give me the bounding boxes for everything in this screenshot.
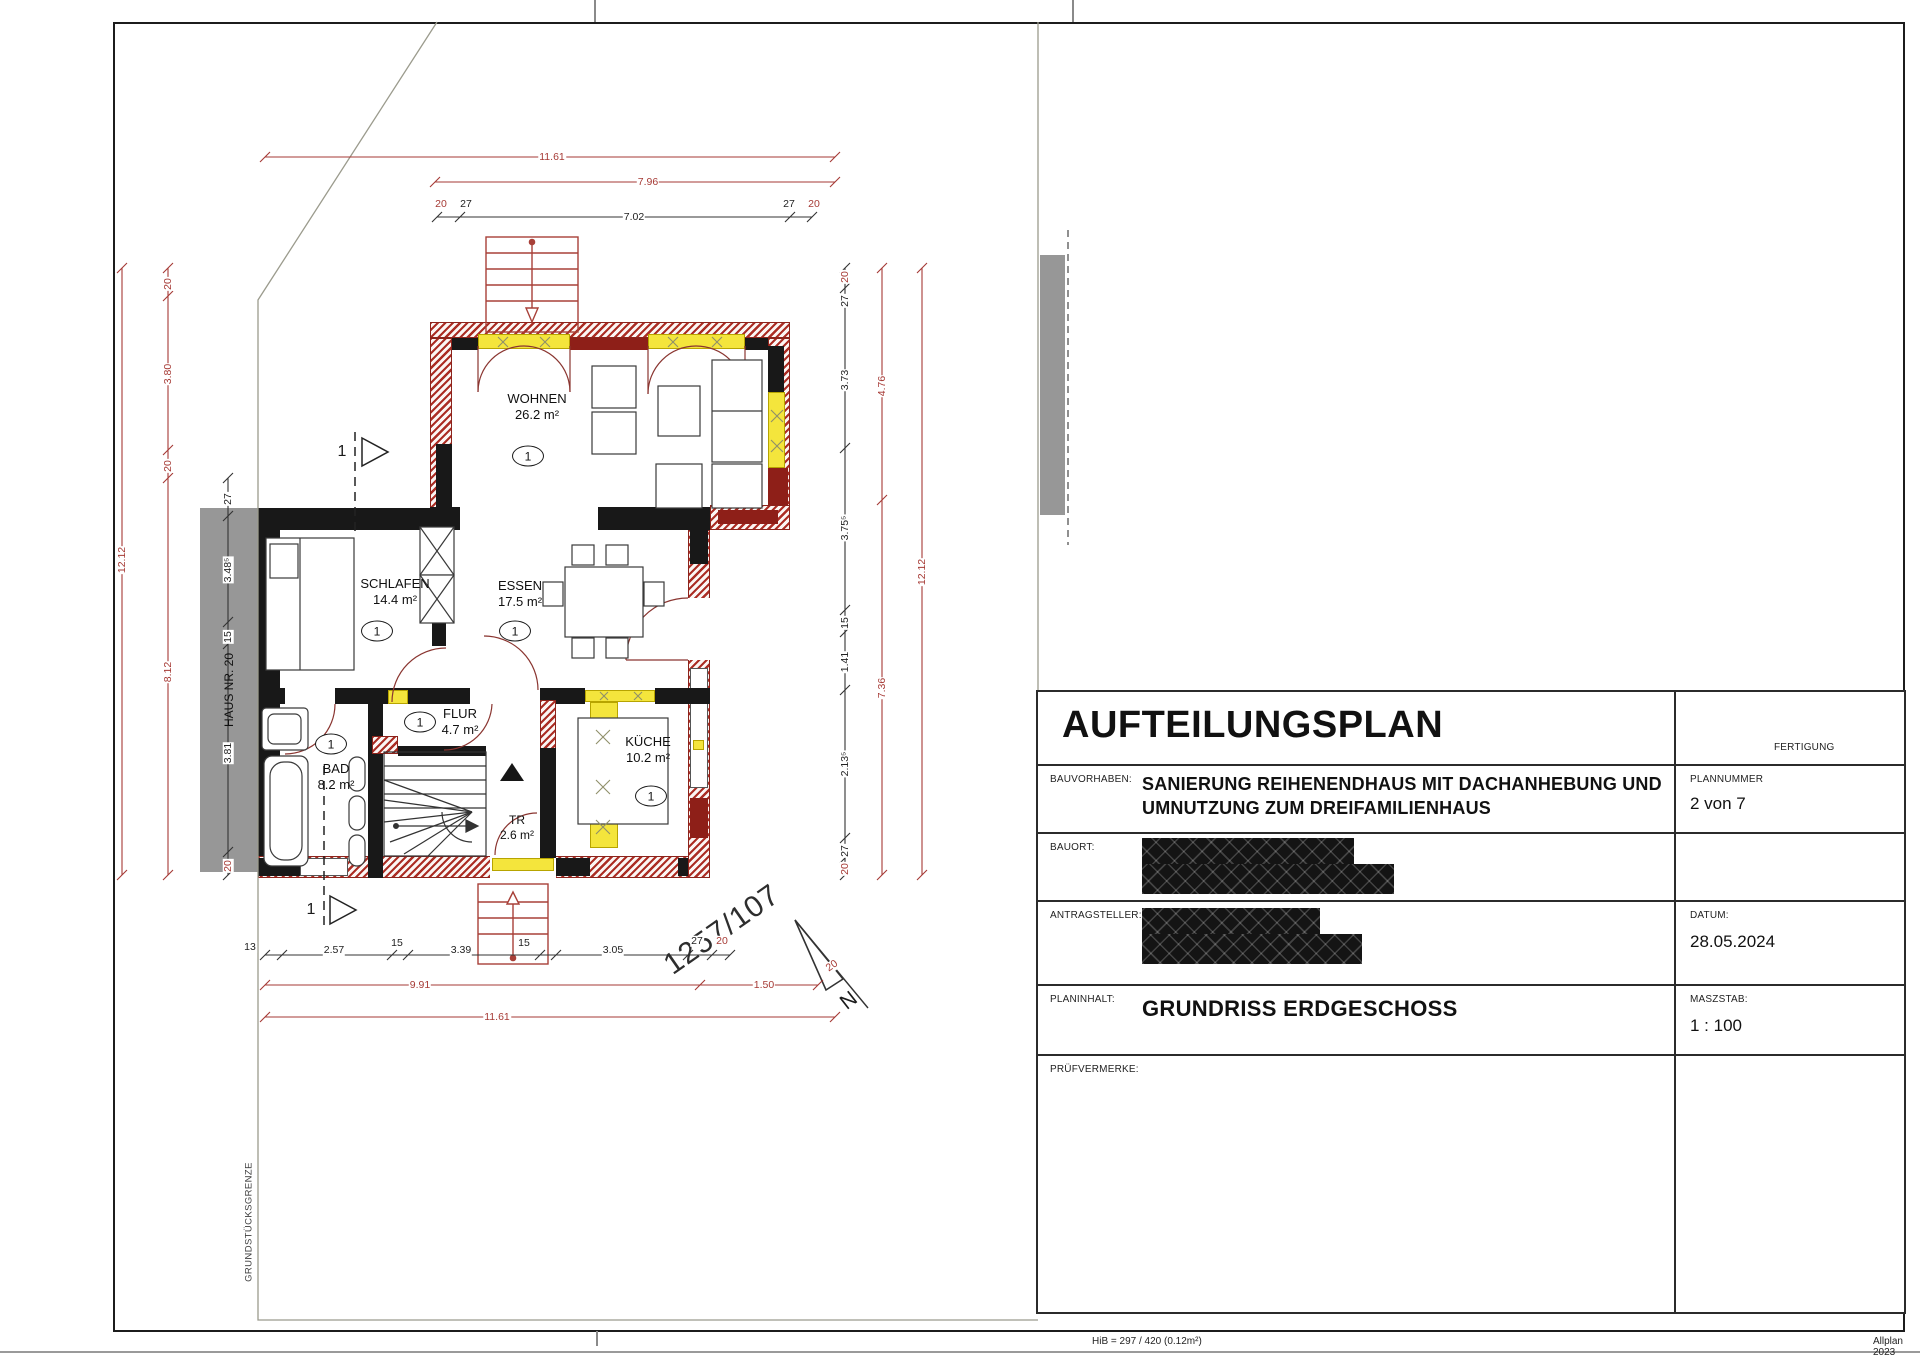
plan-sheet: WOHNEN 26.2 m² 1 SCHLAFEN 14.4 m² 1 ESSE… xyxy=(0,0,1920,1357)
room-label-tr: TR 2.6 m² xyxy=(500,813,534,843)
dim-label: 15 xyxy=(517,938,531,949)
dim-label: 3.39 xyxy=(450,945,472,956)
room-label-essen: ESSEN 17.5 m² xyxy=(498,578,542,611)
footer-software-note: Allplan 2023 xyxy=(1873,1336,1903,1357)
dim-label: 20 xyxy=(840,862,851,876)
planinhalt-value: GRUNDRISS ERDGESCHOSS xyxy=(1142,996,1458,1022)
dim-label: 15 xyxy=(840,616,851,630)
haus-nr-label: HAUS NR. 20 xyxy=(222,653,236,727)
dim-label: 27 xyxy=(690,936,704,947)
dim-label: 27 xyxy=(223,492,234,506)
bauvorhaben-label: BAUVORHABEN: xyxy=(1050,774,1132,785)
room-label-wohnen: WOHNEN 26.2 m² xyxy=(507,391,566,424)
internal-stair xyxy=(384,752,486,856)
dim-label: 3.73 xyxy=(840,369,851,391)
unit-number: 1 xyxy=(315,734,347,755)
dim-label: 7.36 xyxy=(877,677,888,699)
dim-label: 9.91 xyxy=(409,980,431,991)
entrance-triangle xyxy=(500,763,524,781)
dim-label: 27 xyxy=(782,199,796,210)
dim-label: 27 xyxy=(840,294,851,308)
unit-number: 1 xyxy=(635,786,667,807)
dim-label: 2.57 xyxy=(323,945,345,956)
dim-label: 7.96 xyxy=(637,177,659,188)
grundstuecksgrenze-label: GRUNDSTÜCKSGRENZE xyxy=(244,1162,255,1282)
dim-label: 3.48⁵ xyxy=(223,557,234,584)
room-label-schlafen: SCHLAFEN 14.4 m² xyxy=(360,576,429,609)
section-arrow-top xyxy=(362,438,388,466)
dim-label: 20 xyxy=(223,859,234,873)
dim-label: 20 xyxy=(163,459,174,473)
maszstab-label: MASZSTAB: xyxy=(1690,994,1748,1005)
dim-label: 1.41 xyxy=(840,651,851,673)
dim-label: 27 xyxy=(459,199,473,210)
pruefvermerke-label: PRÜFVERMERKE: xyxy=(1050,1064,1139,1075)
dim-label: 27 xyxy=(840,844,851,858)
antragsteller-redacted xyxy=(1142,934,1362,964)
datum-label: DATUM: xyxy=(1690,910,1729,921)
dim-label: 11.61 xyxy=(538,152,566,163)
unit-number: 1 xyxy=(499,621,531,642)
dim-label: 15 xyxy=(390,938,404,949)
section-arrow-bottom xyxy=(330,896,356,924)
footer-format-note: HiB = 297 / 420 (0.12m²) xyxy=(1092,1336,1202,1347)
dim-label: 4.76 xyxy=(877,375,888,397)
dim-label: 20 xyxy=(434,199,448,210)
dim-label: 20 xyxy=(840,270,851,284)
unit-number: 1 xyxy=(361,621,393,642)
dim-label: 20 xyxy=(163,277,174,291)
maszstab-value: 1 : 100 xyxy=(1690,1016,1742,1036)
dim-label: 2.13⁵ xyxy=(840,751,851,778)
planinhalt-label: PLANINHALT: xyxy=(1050,994,1115,1005)
dim-label: 15 xyxy=(223,630,234,644)
dim-label: 12.12 xyxy=(917,558,928,586)
unit-number: 1 xyxy=(512,446,544,467)
fertigung-label: FERTIGUNG xyxy=(1774,742,1835,753)
entrance-stair-top xyxy=(486,237,578,332)
dim-label: 3.81 xyxy=(223,742,234,764)
dim-label: 3.05 xyxy=(602,945,624,956)
dim-label: 3.80 xyxy=(163,363,174,385)
datum-value: 28.05.2024 xyxy=(1690,932,1775,952)
bauort-label: BAUORT: xyxy=(1050,842,1095,853)
plannummer-label: PLANNUMMER xyxy=(1690,774,1763,785)
unit-number: 1 xyxy=(404,712,436,733)
plannummer-value: 2 von 7 xyxy=(1690,794,1746,814)
dim-label: 3.75⁵ xyxy=(840,515,851,542)
dim-label: 20 xyxy=(807,199,821,210)
dim-label: 20 xyxy=(715,936,729,947)
entrance-stair-bottom xyxy=(478,884,548,964)
title-block-title: AUFTEILUNGSPLAN xyxy=(1062,704,1443,747)
dim-label: 13 xyxy=(243,942,257,953)
antragsteller-label: ANTRAGSTELLER: xyxy=(1050,910,1142,921)
bauort-redacted xyxy=(1142,864,1394,894)
dim-label: 11.61 xyxy=(483,1012,511,1023)
bauort-redacted xyxy=(1142,838,1354,866)
room-label-flur: FLUR 4.7 m² xyxy=(442,706,479,739)
dim-label: 7.02 xyxy=(623,212,645,223)
section-number-bottom: 1 xyxy=(307,901,316,919)
dim-label: 8.12 xyxy=(163,661,174,683)
room-label-kueche: KÜCHE 10.2 m² xyxy=(625,734,671,767)
bauvorhaben-value: SANIERUNG REIHENENDHAUS MIT DACHANHEBUNG… xyxy=(1142,772,1662,821)
dim-label: 1.50 xyxy=(753,980,775,991)
room-label-bad: BAD 8.2 m² xyxy=(318,761,355,794)
title-block: AUFTEILUNGSPLAN FERTIGUNG BAUVORHABEN: S… xyxy=(1036,690,1906,1314)
section-number-top: 1 xyxy=(338,443,347,461)
dim-label: 12.12 xyxy=(117,546,128,574)
antragsteller-redacted xyxy=(1142,908,1320,936)
